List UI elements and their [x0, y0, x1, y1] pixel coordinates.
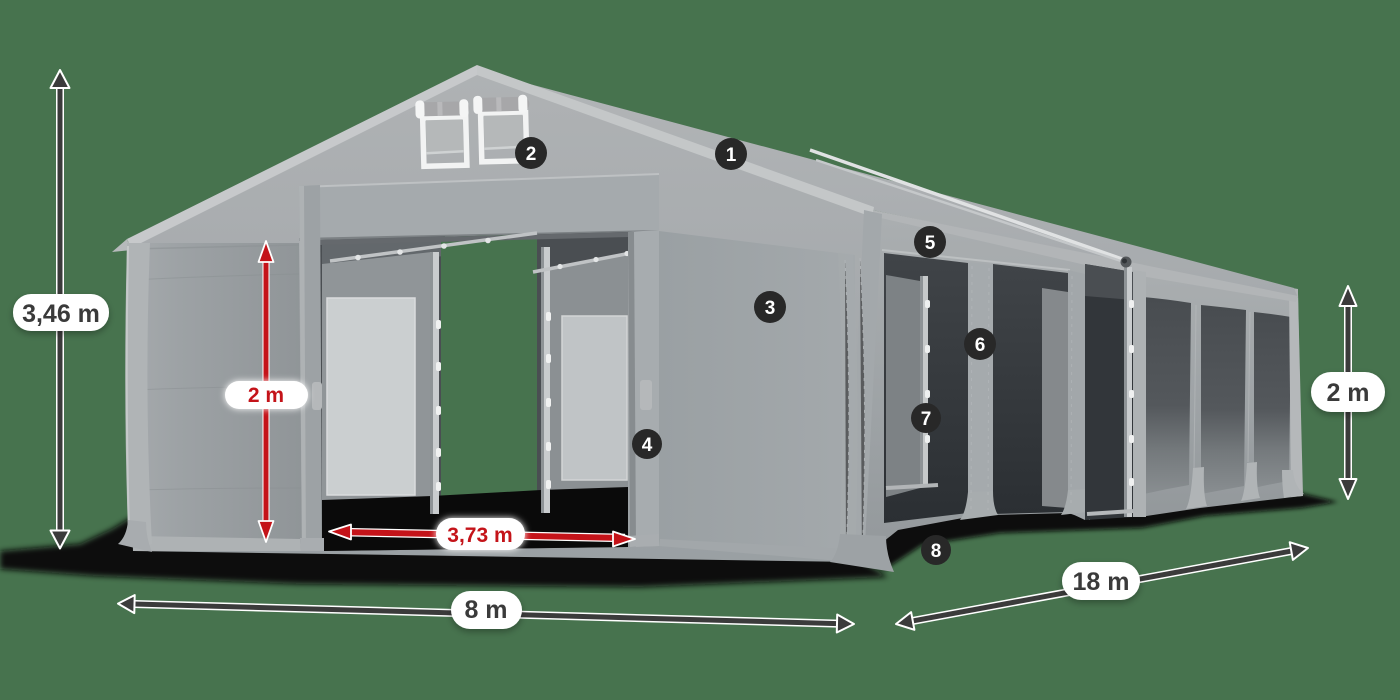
svg-text:1: 1: [726, 145, 737, 166]
svg-text:18 m: 18 m: [1073, 568, 1130, 596]
svg-text:4: 4: [642, 435, 653, 456]
svg-text:8 m: 8 m: [464, 596, 507, 624]
svg-text:6: 6: [975, 335, 986, 356]
svg-text:7: 7: [921, 409, 932, 430]
svg-text:2 m: 2 m: [248, 384, 284, 407]
svg-text:3,73 m: 3,73 m: [447, 524, 512, 547]
svg-text:8: 8: [931, 541, 942, 562]
svg-text:2: 2: [526, 144, 537, 165]
svg-text:5: 5: [925, 233, 936, 254]
svg-text:2 m: 2 m: [1326, 379, 1369, 407]
svg-text:3: 3: [765, 298, 776, 319]
svg-text:3,46 m: 3,46 m: [22, 300, 100, 328]
